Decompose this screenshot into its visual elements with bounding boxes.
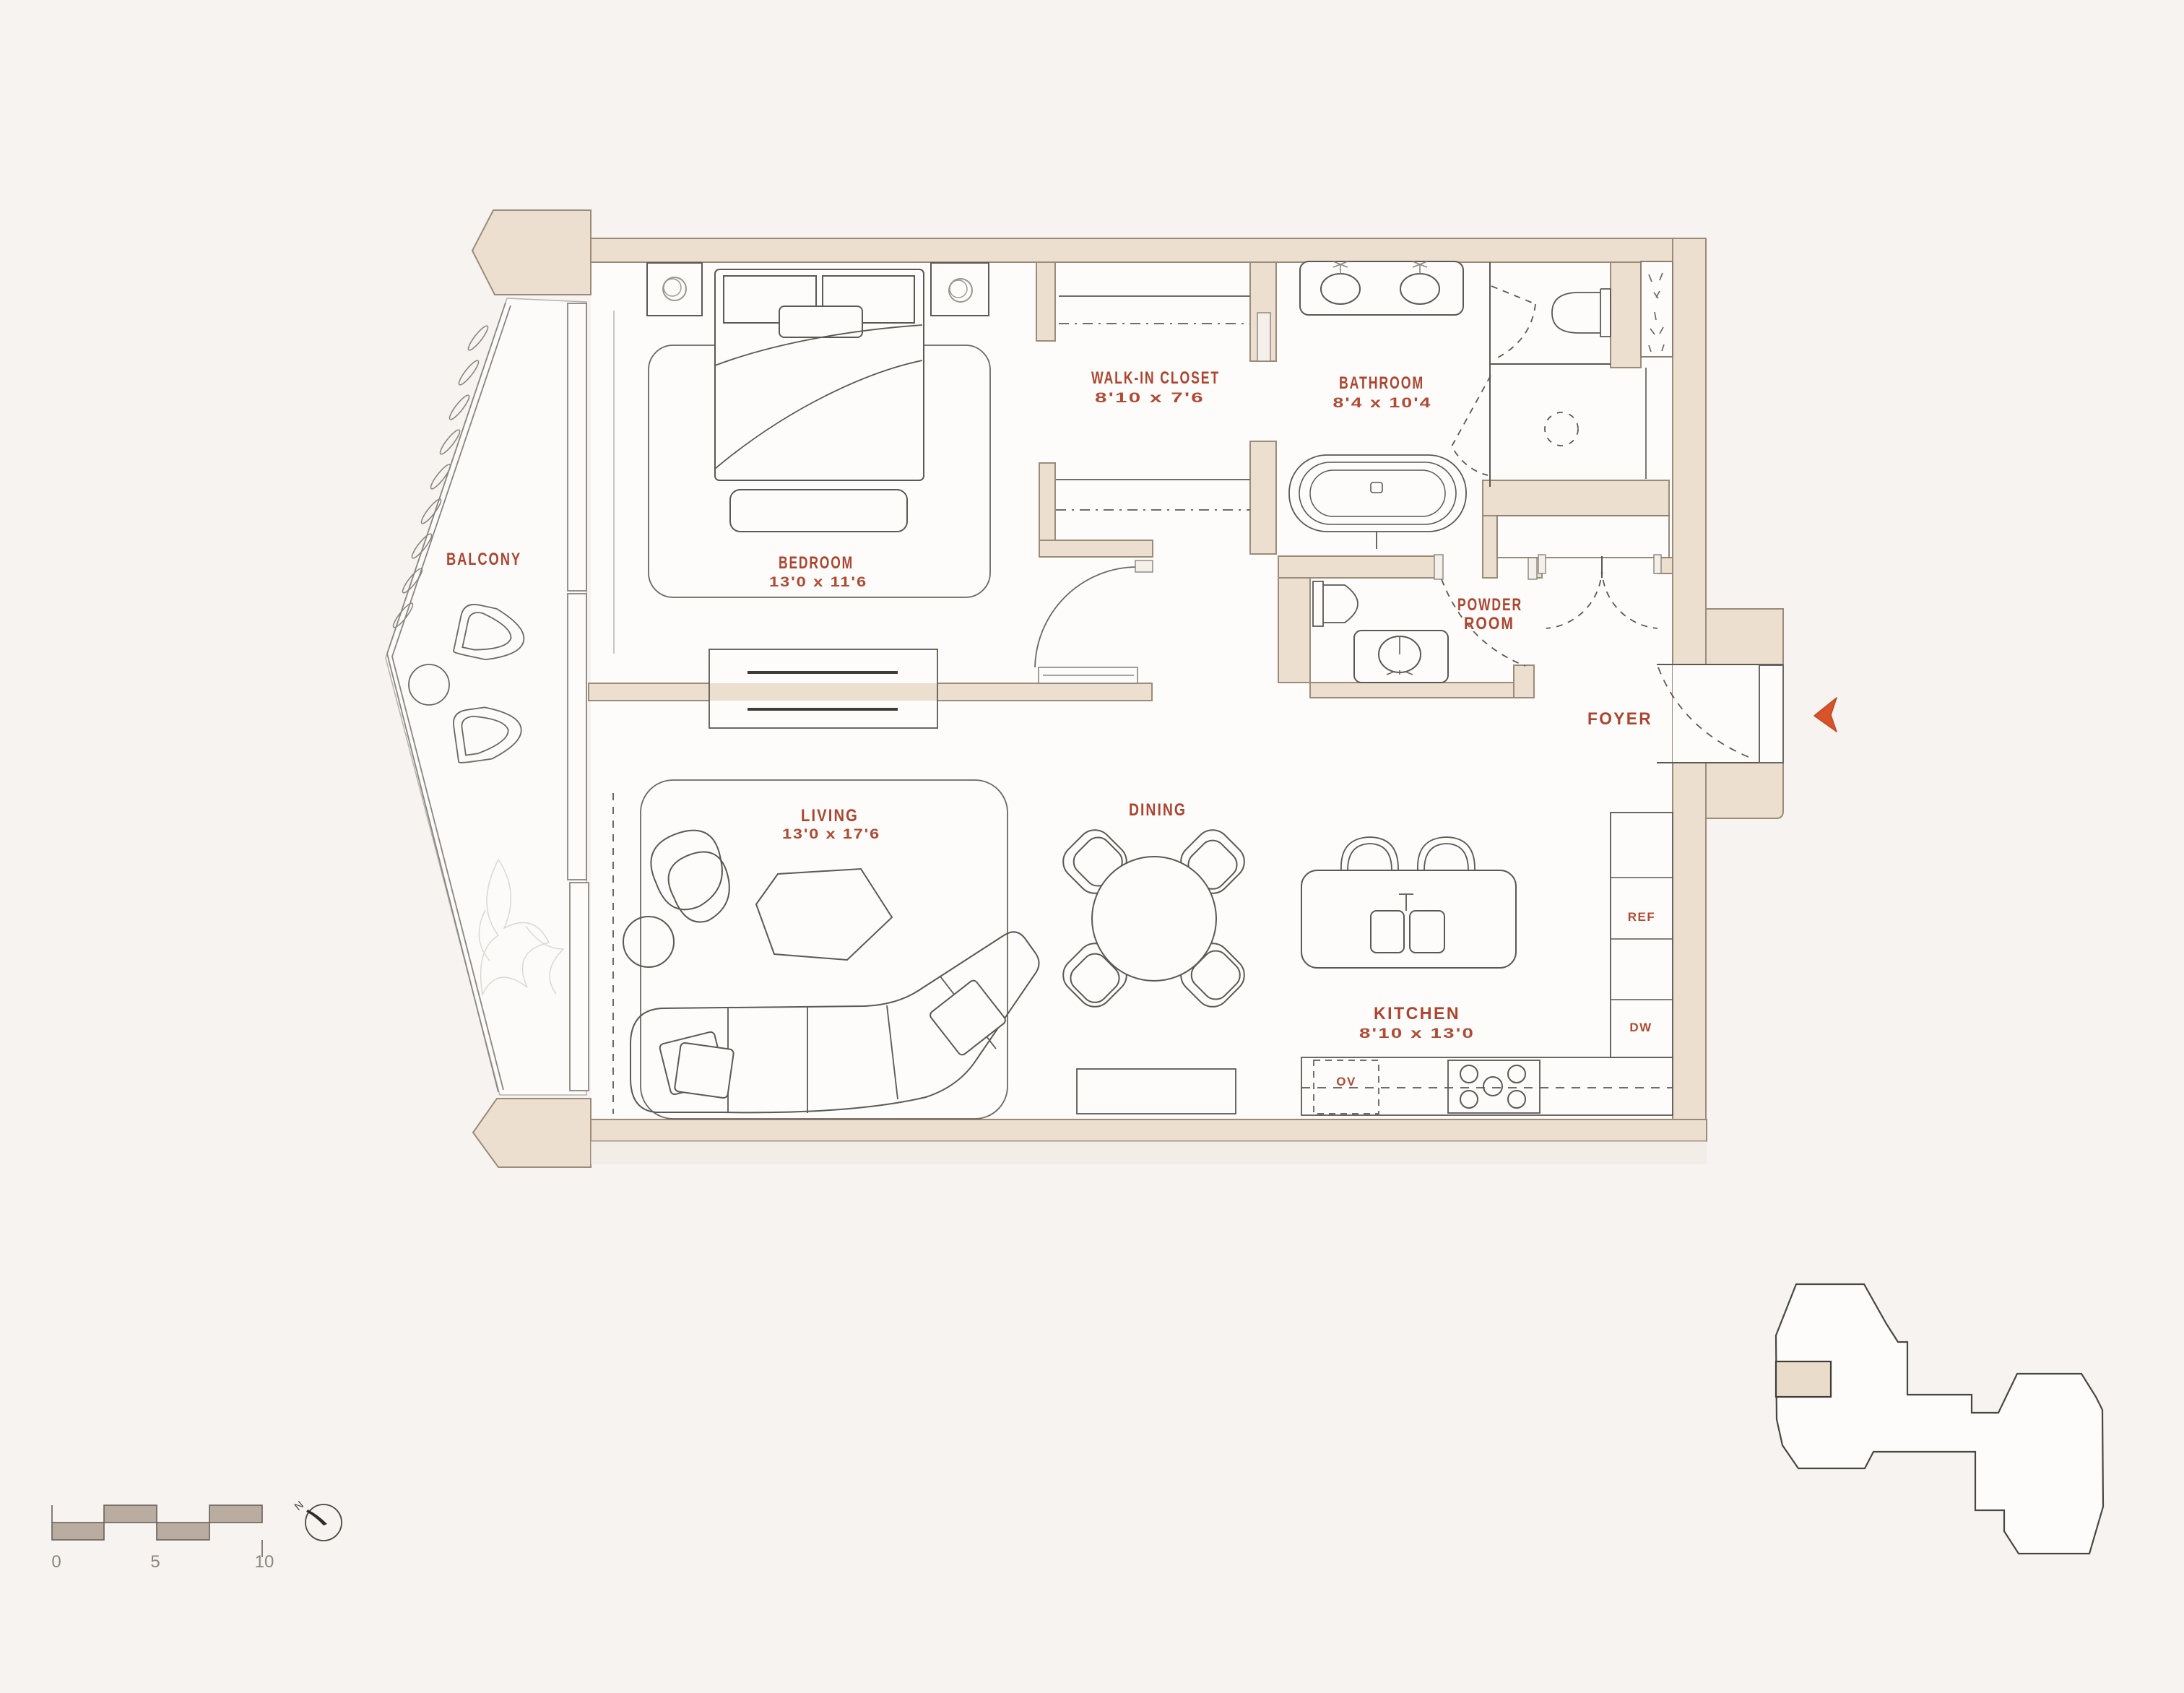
svg-text:REF: REF: [1628, 910, 1656, 924]
svg-text:DINING: DINING: [1129, 800, 1187, 820]
svg-text:ROOM: ROOM: [1464, 614, 1514, 633]
svg-text:BALCONY: BALCONY: [446, 550, 521, 569]
svg-text:5: 5: [150, 1552, 160, 1572]
svg-text:8'10 x 7'6: 8'10 x 7'6: [1095, 391, 1205, 406]
svg-text:0: 0: [51, 1552, 61, 1572]
svg-text:10: 10: [255, 1552, 274, 1572]
svg-text:FOYER: FOYER: [1587, 709, 1652, 729]
svg-text:BATHROOM: BATHROOM: [1339, 373, 1424, 393]
svg-text:OV: OV: [1336, 1075, 1356, 1088]
svg-text:LIVING: LIVING: [801, 806, 859, 826]
svg-text:WALK-IN CLOSET: WALK-IN CLOSET: [1091, 368, 1220, 388]
svg-text:13'0 x 17'6: 13'0 x 17'6: [782, 827, 880, 842]
svg-text:POWDER: POWDER: [1457, 595, 1522, 615]
svg-text:KITCHEN: KITCHEN: [1374, 1004, 1460, 1023]
svg-text:DW: DW: [1629, 1021, 1652, 1034]
svg-text:BEDROOM: BEDROOM: [779, 553, 854, 573]
svg-text:8'10 x 13'0: 8'10 x 13'0: [1359, 1026, 1475, 1042]
svg-text:13'0 x 11'6: 13'0 x 11'6: [769, 575, 867, 590]
svg-text:8'4 x 10'4: 8'4 x 10'4: [1333, 396, 1432, 411]
